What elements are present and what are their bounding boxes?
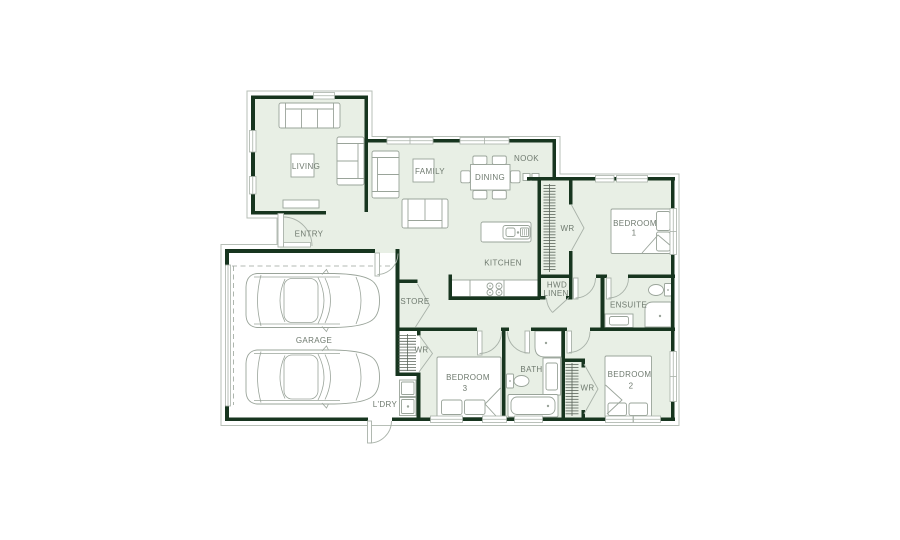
svg-text:WR: WR xyxy=(414,346,428,355)
svg-text:FAMILY: FAMILY xyxy=(415,167,445,176)
svg-text:LIVING: LIVING xyxy=(292,162,320,171)
svg-text:DINING: DINING xyxy=(475,173,505,182)
svg-text:KITCHEN: KITCHEN xyxy=(484,259,522,268)
svg-text:ENTRY: ENTRY xyxy=(295,230,324,239)
svg-text:L'DRY: L'DRY xyxy=(373,400,398,409)
svg-text:2: 2 xyxy=(629,382,634,391)
svg-text:BEDROOM: BEDROOM xyxy=(446,373,490,382)
svg-text:STORE: STORE xyxy=(400,297,429,306)
svg-text:BEDROOM: BEDROOM xyxy=(608,370,652,379)
svg-text:NOOK: NOOK xyxy=(514,154,539,163)
svg-text:LINEN: LINEN xyxy=(543,289,568,298)
svg-text:1: 1 xyxy=(632,229,637,238)
svg-text:3: 3 xyxy=(463,384,468,393)
svg-text:WR: WR xyxy=(560,224,574,233)
svg-text:BEDROOM: BEDROOM xyxy=(613,219,657,228)
svg-text:ENSUITE: ENSUITE xyxy=(610,301,647,310)
svg-text:WR: WR xyxy=(580,384,594,393)
svg-text:BATH: BATH xyxy=(520,365,542,374)
svg-text:GARAGE: GARAGE xyxy=(296,336,332,345)
